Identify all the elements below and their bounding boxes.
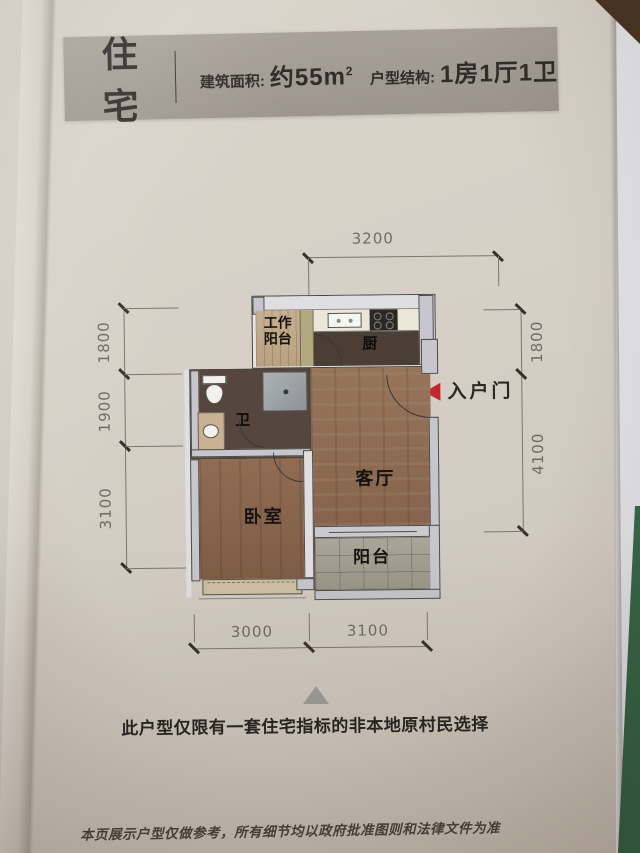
area-label: 建筑面积: <box>200 69 265 91</box>
footer-disclaimer: 本页展示户型仅做参考，所有细节均以政府批准图则和法律文件为准 <box>0 815 580 845</box>
floor-plan: 3200 1800 1900 3100 1800 4100 3000 3100 <box>83 225 568 675</box>
layout-label: 户型结构: <box>370 66 435 88</box>
washbasin-icon <box>198 412 225 452</box>
shower-icon <box>262 371 307 411</box>
bedroom-living-wall <box>303 450 314 578</box>
layout-spec: 户型结构: 1房1厅1卫 <box>370 51 559 90</box>
layout-value: 1房1厅1卫 <box>440 51 559 88</box>
header-divider <box>174 51 176 103</box>
dim-left-1: 1800 <box>95 312 114 372</box>
bay-window <box>202 578 302 595</box>
dim-line-right <box>521 309 524 531</box>
kitchen-block: 工作阳台 厨 <box>251 294 436 369</box>
dim-line-top <box>308 255 498 258</box>
dim-line-left <box>123 308 127 568</box>
room-label-living: 客厅 <box>347 468 403 489</box>
work-balcony-divider <box>300 310 315 366</box>
area-spec: 建筑面积: 约55m2 <box>199 56 353 94</box>
dim-bottom-2: 3100 <box>333 621 403 640</box>
dim-top: 3200 <box>333 229 413 248</box>
dim-right-1: 1800 <box>528 312 547 372</box>
room-label-kitchen: 厨 <box>353 335 387 353</box>
gray-triangle-icon <box>303 686 329 704</box>
area-value: 约55m2 <box>269 56 353 93</box>
dim-bottom-1: 3000 <box>217 622 287 641</box>
room-label-balcony: 阳台 <box>344 547 400 567</box>
kitchen-counter <box>314 309 419 332</box>
kitchen-sink-icon <box>328 313 362 328</box>
notice-text: 此户型仅限有一套住宅指标的非本地原村民选择 <box>0 708 610 740</box>
balcony-bottom-wall <box>314 589 440 600</box>
dim-left-3: 3100 <box>96 478 115 538</box>
dim-left-2: 1900 <box>95 381 114 441</box>
brochure-photo: 住宅 建筑面积: 约55m2 户型结构: 1房1厅1卫 3200 1800 19… <box>0 0 640 853</box>
toilet-icon <box>202 375 226 384</box>
stove-icon <box>370 309 398 330</box>
room-label-bedroom: 卧室 <box>236 506 292 527</box>
right-wall <box>429 417 440 527</box>
bath-block: 卫 <box>189 368 313 459</box>
page-title: 住宅 <box>101 25 154 130</box>
room-label-work-balcony: 工作阳台 <box>256 314 300 347</box>
entrance-label: 入户门 <box>447 376 513 404</box>
bedroom-balcony-wall <box>296 578 314 590</box>
dim-right-2: 4100 <box>529 424 548 484</box>
bath-door-arc <box>239 420 265 448</box>
entrance-pillar <box>421 339 438 374</box>
header-band: 住宅 建筑面积: 约55m2 户型结构: 1房1厅1卫 <box>63 27 559 121</box>
